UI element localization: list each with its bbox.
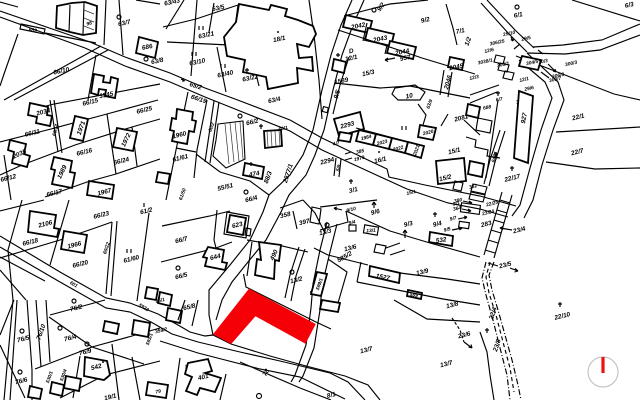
svg-text:13/1: 13/1 [366,228,376,235]
